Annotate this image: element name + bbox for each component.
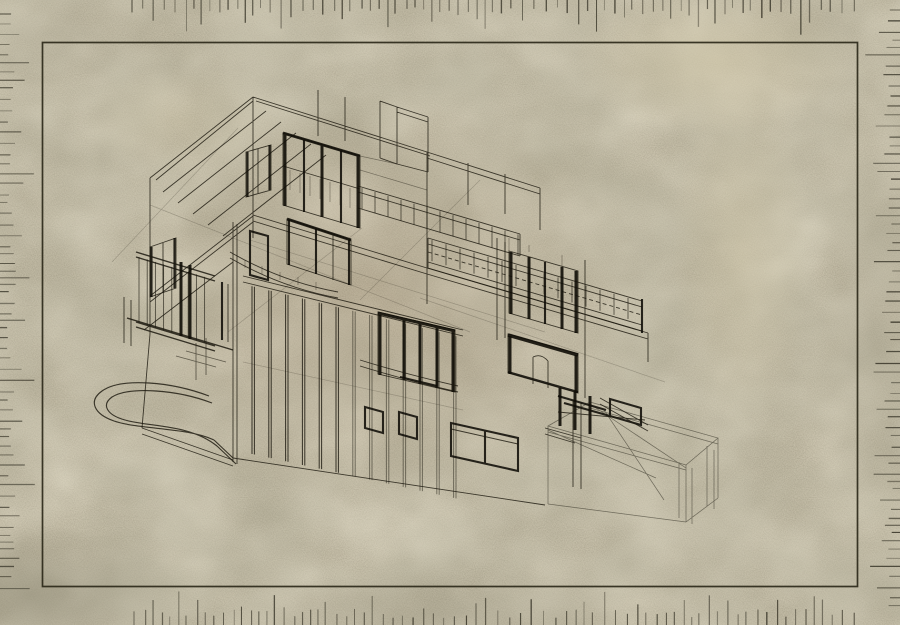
- blueprint-scene: [0, 0, 900, 625]
- document-canvas: [0, 0, 900, 625]
